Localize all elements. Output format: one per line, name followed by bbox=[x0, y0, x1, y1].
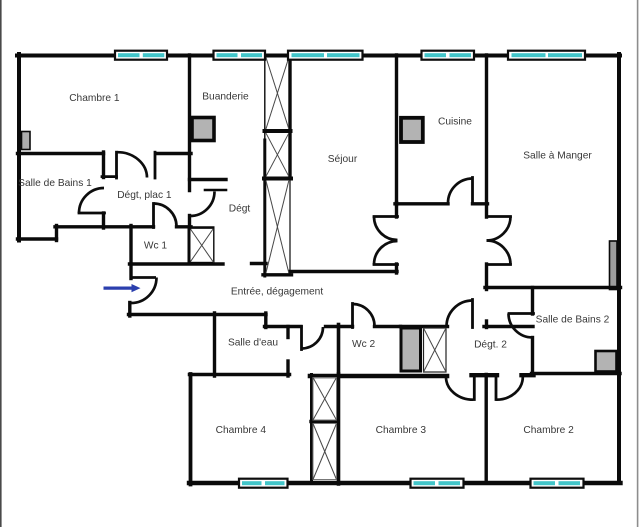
svg-text:Chambre 1: Chambre 1 bbox=[69, 93, 120, 104]
svg-text:Salle d'eau: Salle d'eau bbox=[228, 338, 278, 349]
svg-text:Salle de Bains 1: Salle de Bains 1 bbox=[18, 178, 92, 189]
svg-text:Salle à Manger: Salle à Manger bbox=[523, 151, 592, 162]
svg-text:Cuisine: Cuisine bbox=[438, 117, 472, 128]
svg-text:Chambre 3: Chambre 3 bbox=[376, 425, 427, 436]
svg-text:Dégt. 2: Dégt. 2 bbox=[474, 340, 507, 351]
svg-text:Wc 2: Wc 2 bbox=[352, 339, 376, 350]
svg-text:Séjour: Séjour bbox=[328, 154, 358, 165]
svg-text:Chambre 2: Chambre 2 bbox=[523, 425, 574, 436]
svg-text:Dégt, plac 1: Dégt, plac 1 bbox=[117, 190, 172, 201]
svg-text:Wc 1: Wc 1 bbox=[144, 241, 168, 252]
svg-text:Buanderie: Buanderie bbox=[202, 92, 249, 103]
svg-text:Chambre 4: Chambre 4 bbox=[216, 425, 267, 436]
svg-text:Salle de Bains 2: Salle de Bains 2 bbox=[536, 315, 610, 326]
svg-text:Entrée, dégagement: Entrée, dégagement bbox=[231, 287, 323, 298]
svg-text:Dégt: Dégt bbox=[229, 204, 251, 215]
